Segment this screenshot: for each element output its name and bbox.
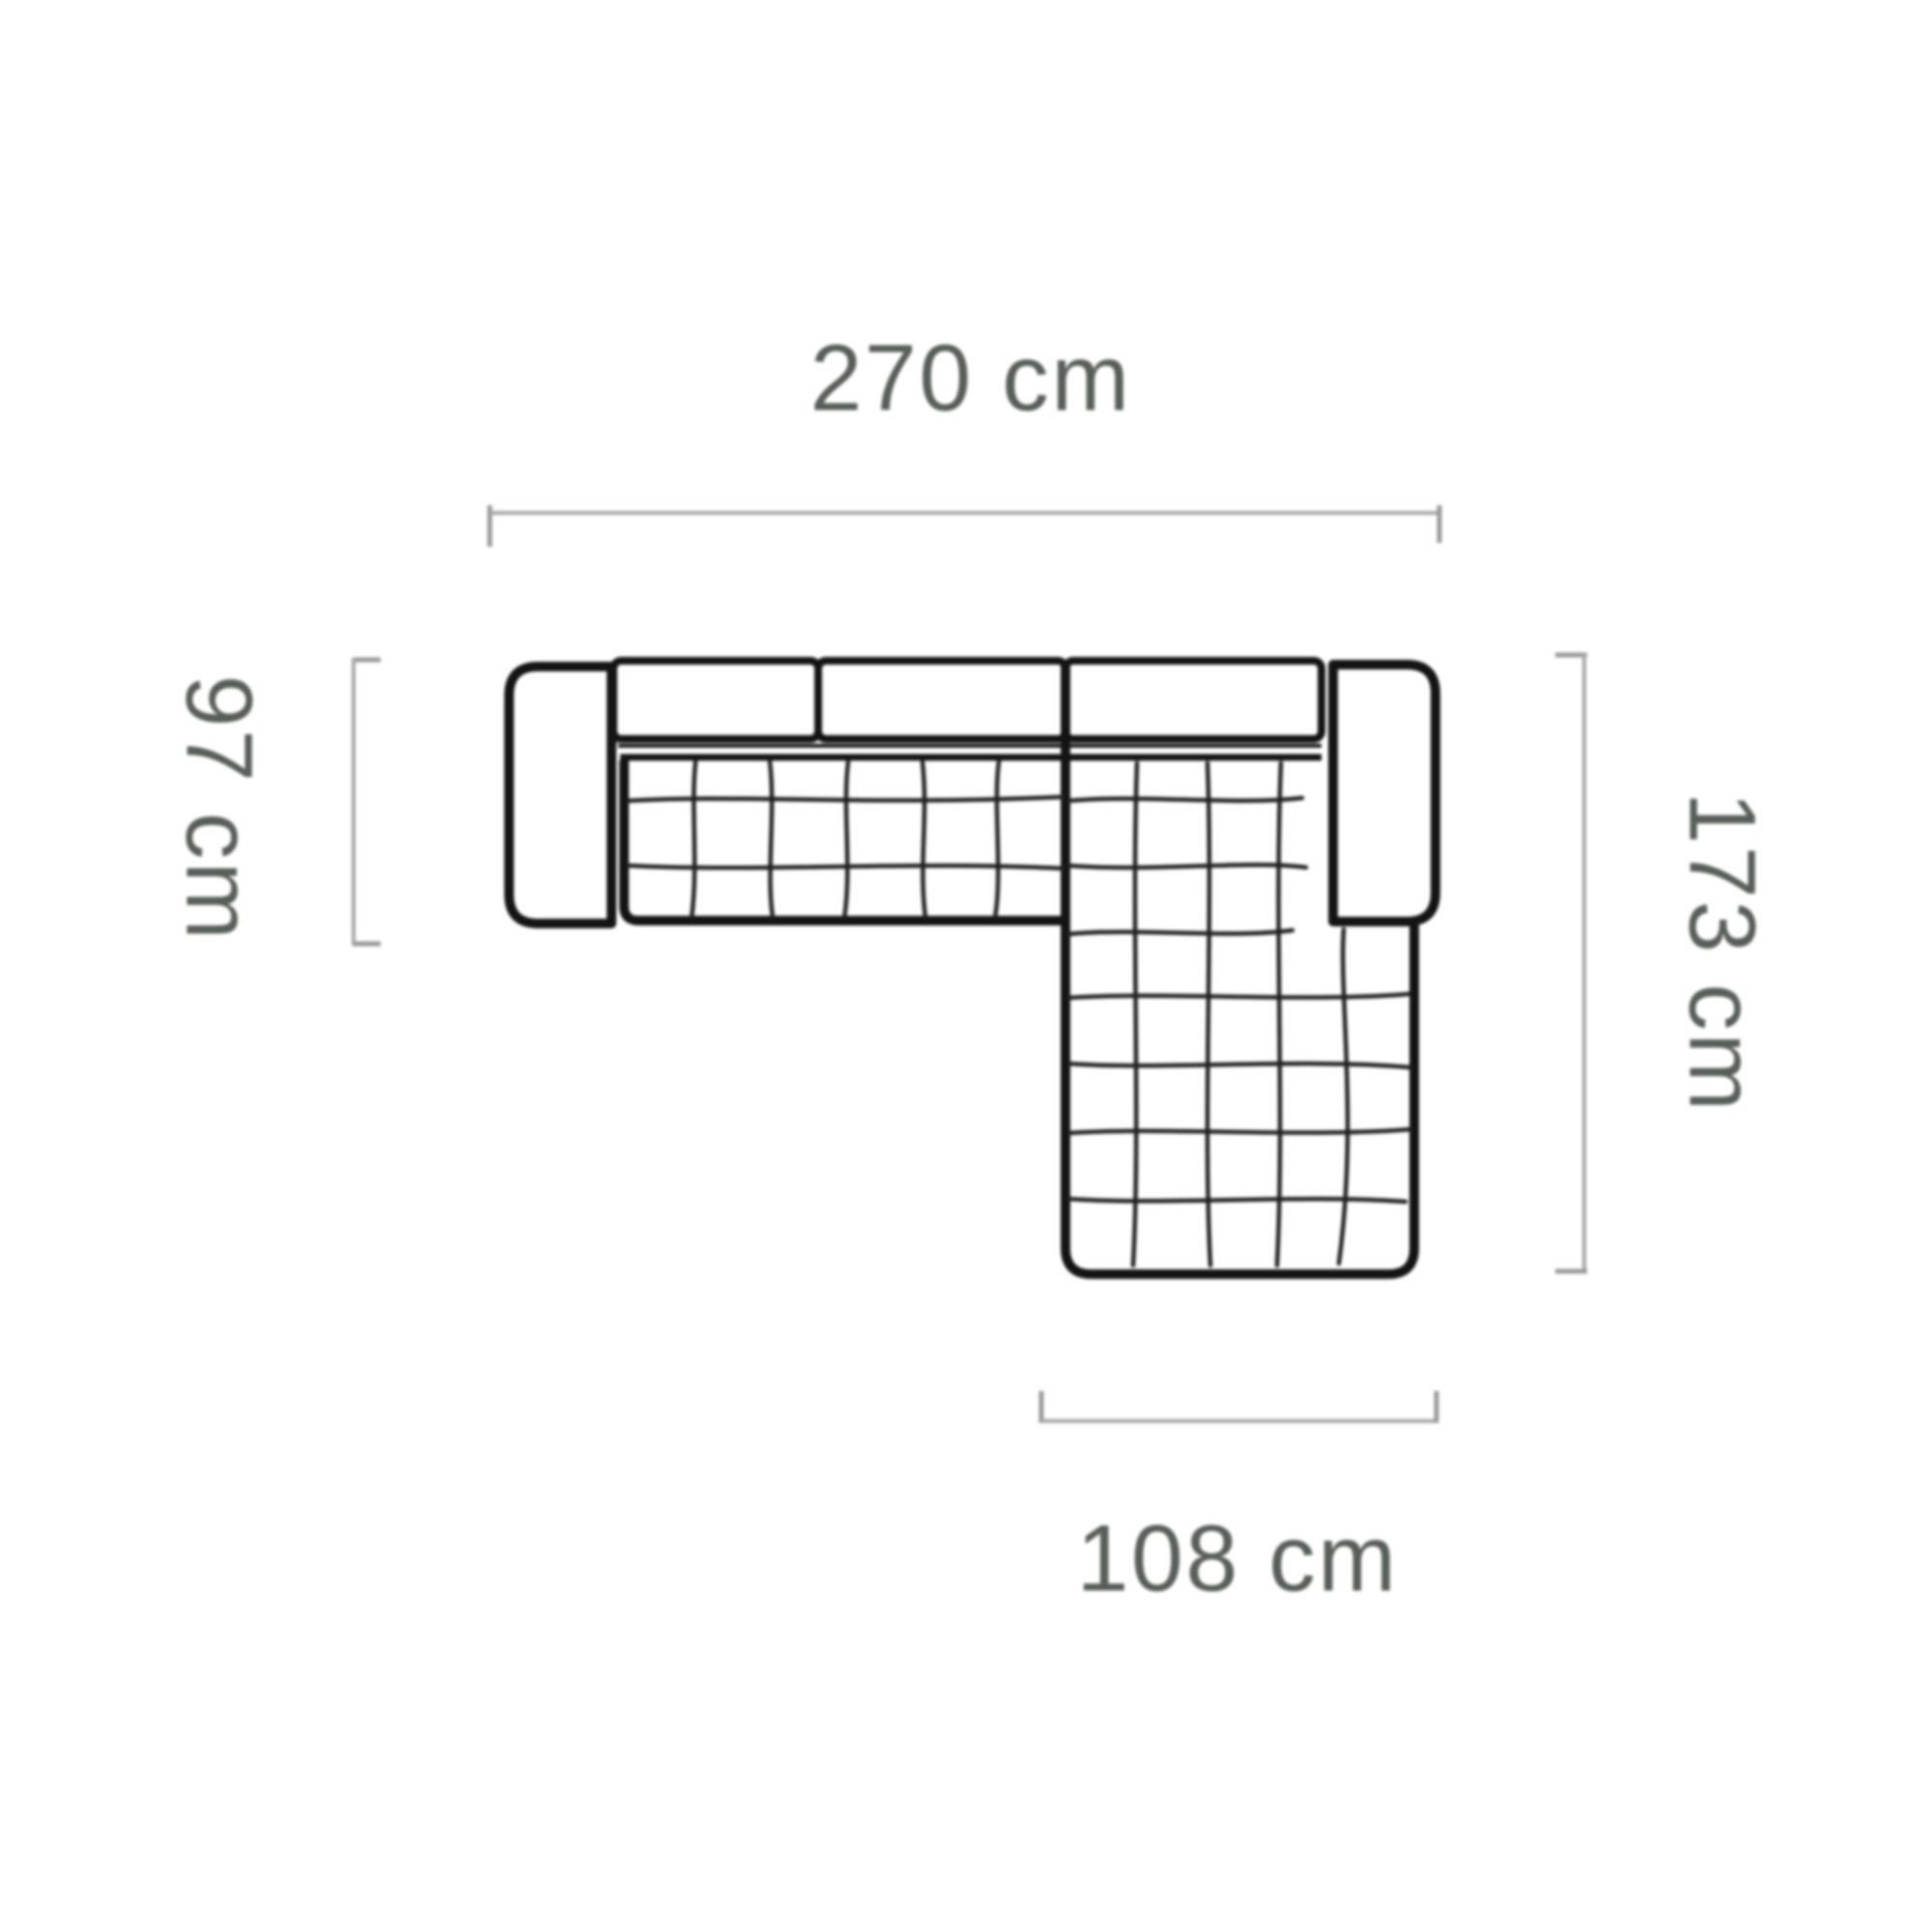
svg-text:173 cm: 173 cm: [1670, 791, 1776, 1113]
svg-text:108 cm: 108 cm: [1076, 1506, 1398, 1611]
svg-text:97 cm: 97 cm: [167, 675, 272, 943]
svg-text:270 cm: 270 cm: [810, 326, 1131, 431]
